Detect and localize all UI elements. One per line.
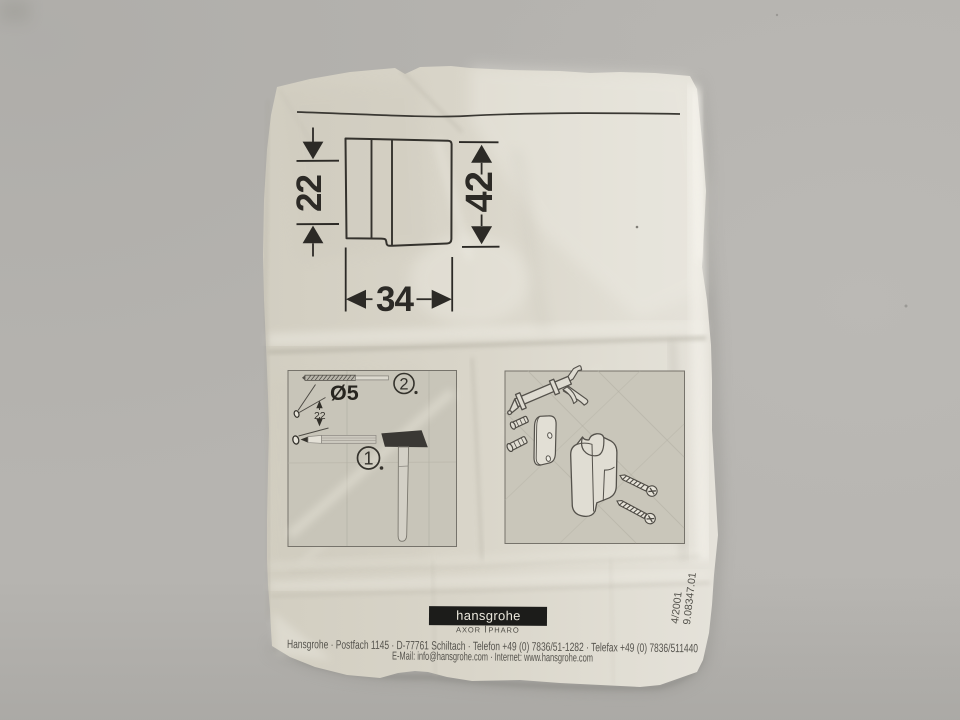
svg-text:hansgrohe: hansgrohe — [456, 608, 521, 623]
svg-text:42: 42 — [459, 172, 501, 212]
svg-text:22: 22 — [290, 175, 329, 212]
svg-text:1: 1 — [363, 449, 373, 469]
svg-text:E-Mail: info@hansgrohe.com · I: E-Mail: info@hansgrohe.com · Internet: w… — [392, 651, 593, 665]
svg-text:Ø5: Ø5 — [330, 381, 359, 405]
svg-text:AXOR: AXOR — [456, 625, 481, 634]
svg-text:PHARO: PHARO — [488, 626, 519, 635]
svg-text:34: 34 — [376, 280, 414, 319]
svg-text:2: 2 — [399, 376, 408, 394]
